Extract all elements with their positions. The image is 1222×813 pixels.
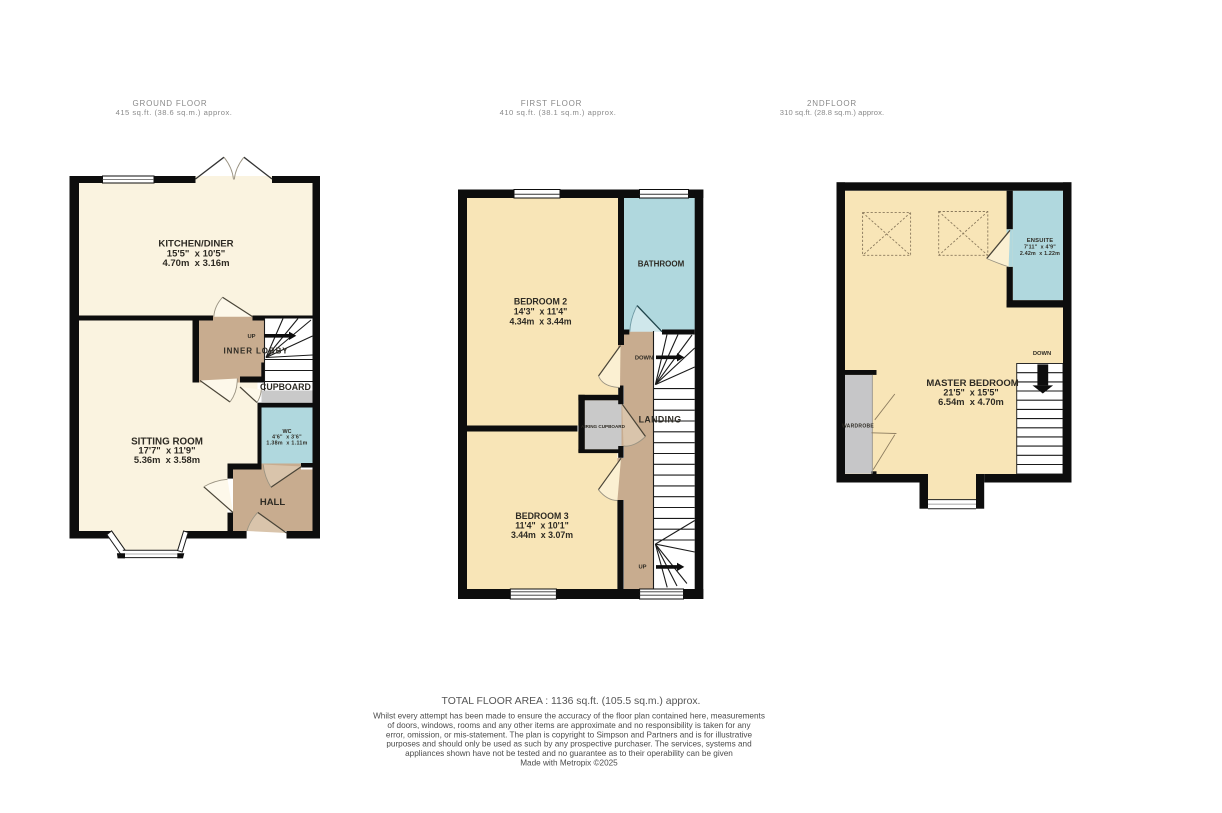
- svg-text:BATHROOM: BATHROOM: [638, 260, 685, 269]
- svg-text:4.34m x 3.44m: 4.34m x 3.44m: [509, 317, 571, 327]
- svg-text:BEDROOM 3: BEDROOM 3: [515, 511, 568, 521]
- svg-text:7'11" x 4'9": 7'11" x 4'9": [1024, 244, 1056, 250]
- svg-text:LANDING: LANDING: [639, 415, 682, 425]
- svg-text:CUPBOARD: CUPBOARD: [260, 382, 311, 392]
- svg-text:of doors, windows, rooms and a: of doors, windows, rooms and any other i…: [387, 721, 751, 730]
- svg-text:DOWN: DOWN: [1033, 351, 1051, 357]
- svg-text:310 sq.ft. (28.8 sq.m.) approx: 310 sq.ft. (28.8 sq.m.) approx.: [780, 108, 884, 117]
- svg-text:14'3" x 11'4": 14'3" x 11'4": [514, 307, 568, 317]
- svg-text:HALL: HALL: [260, 497, 286, 508]
- svg-text:GROUND FLOOR: GROUND FLOOR: [133, 99, 208, 108]
- svg-text:INNER LOBBY: INNER LOBBY: [223, 347, 288, 356]
- svg-text:purposes and should only be us: purposes and should only be used as such…: [386, 740, 752, 749]
- svg-text:3.44m x 3.07m: 3.44m x 3.07m: [511, 530, 573, 540]
- svg-text:Whilst every attempt has been: Whilst every attempt has been made to en…: [373, 712, 765, 721]
- svg-text:2.42m x 1.22m: 2.42m x 1.22m: [1020, 251, 1060, 257]
- svg-text:UP: UP: [247, 334, 255, 340]
- svg-text:appliances shown have not be t: appliances shown have not be tested and …: [405, 749, 733, 758]
- svg-text:ENSUITE: ENSUITE: [1027, 238, 1054, 244]
- svg-text:DOWN: DOWN: [635, 355, 653, 361]
- svg-text:410 sq.ft. (38.1 sq.m.) approx: 410 sq.ft. (38.1 sq.m.) approx.: [500, 108, 617, 117]
- svg-text:Made with Metropix ©2025: Made with Metropix ©2025: [520, 759, 618, 768]
- svg-text:BEDROOM 2: BEDROOM 2: [514, 297, 567, 307]
- svg-text:AIRING CUPBOARD: AIRING CUPBOARD: [581, 424, 626, 429]
- svg-text:2NDFLOOR: 2NDFLOOR: [807, 99, 857, 108]
- svg-text:FIRST FLOOR: FIRST FLOOR: [521, 99, 583, 108]
- svg-text:11'4" x 10'1": 11'4" x 10'1": [515, 521, 569, 531]
- svg-text:TOTAL FLOOR AREA : 1136 sq.ft.: TOTAL FLOOR AREA : 1136 sq.ft. (105.5 sq…: [442, 696, 701, 707]
- svg-text:415 sq.ft. (38.6 sq.m.) approx: 415 sq.ft. (38.6 sq.m.) approx.: [116, 108, 233, 117]
- svg-text:WARDROBE: WARDROBE: [842, 424, 874, 430]
- svg-text:6.54m x 4.70m: 6.54m x 4.70m: [938, 397, 1004, 407]
- svg-text:4.70m x 3.16m: 4.70m x 3.16m: [162, 258, 229, 269]
- svg-text:21'5" x 15'5": 21'5" x 15'5": [943, 388, 998, 398]
- svg-text:5.36m x 3.58m: 5.36m x 3.58m: [134, 454, 200, 465]
- svg-text:UP: UP: [638, 565, 646, 571]
- svg-text:1.38m x 1.11m: 1.38m x 1.11m: [266, 440, 307, 446]
- svg-text:error, omission, or mis-statem: error, omission, or mis-statement. The p…: [386, 730, 753, 739]
